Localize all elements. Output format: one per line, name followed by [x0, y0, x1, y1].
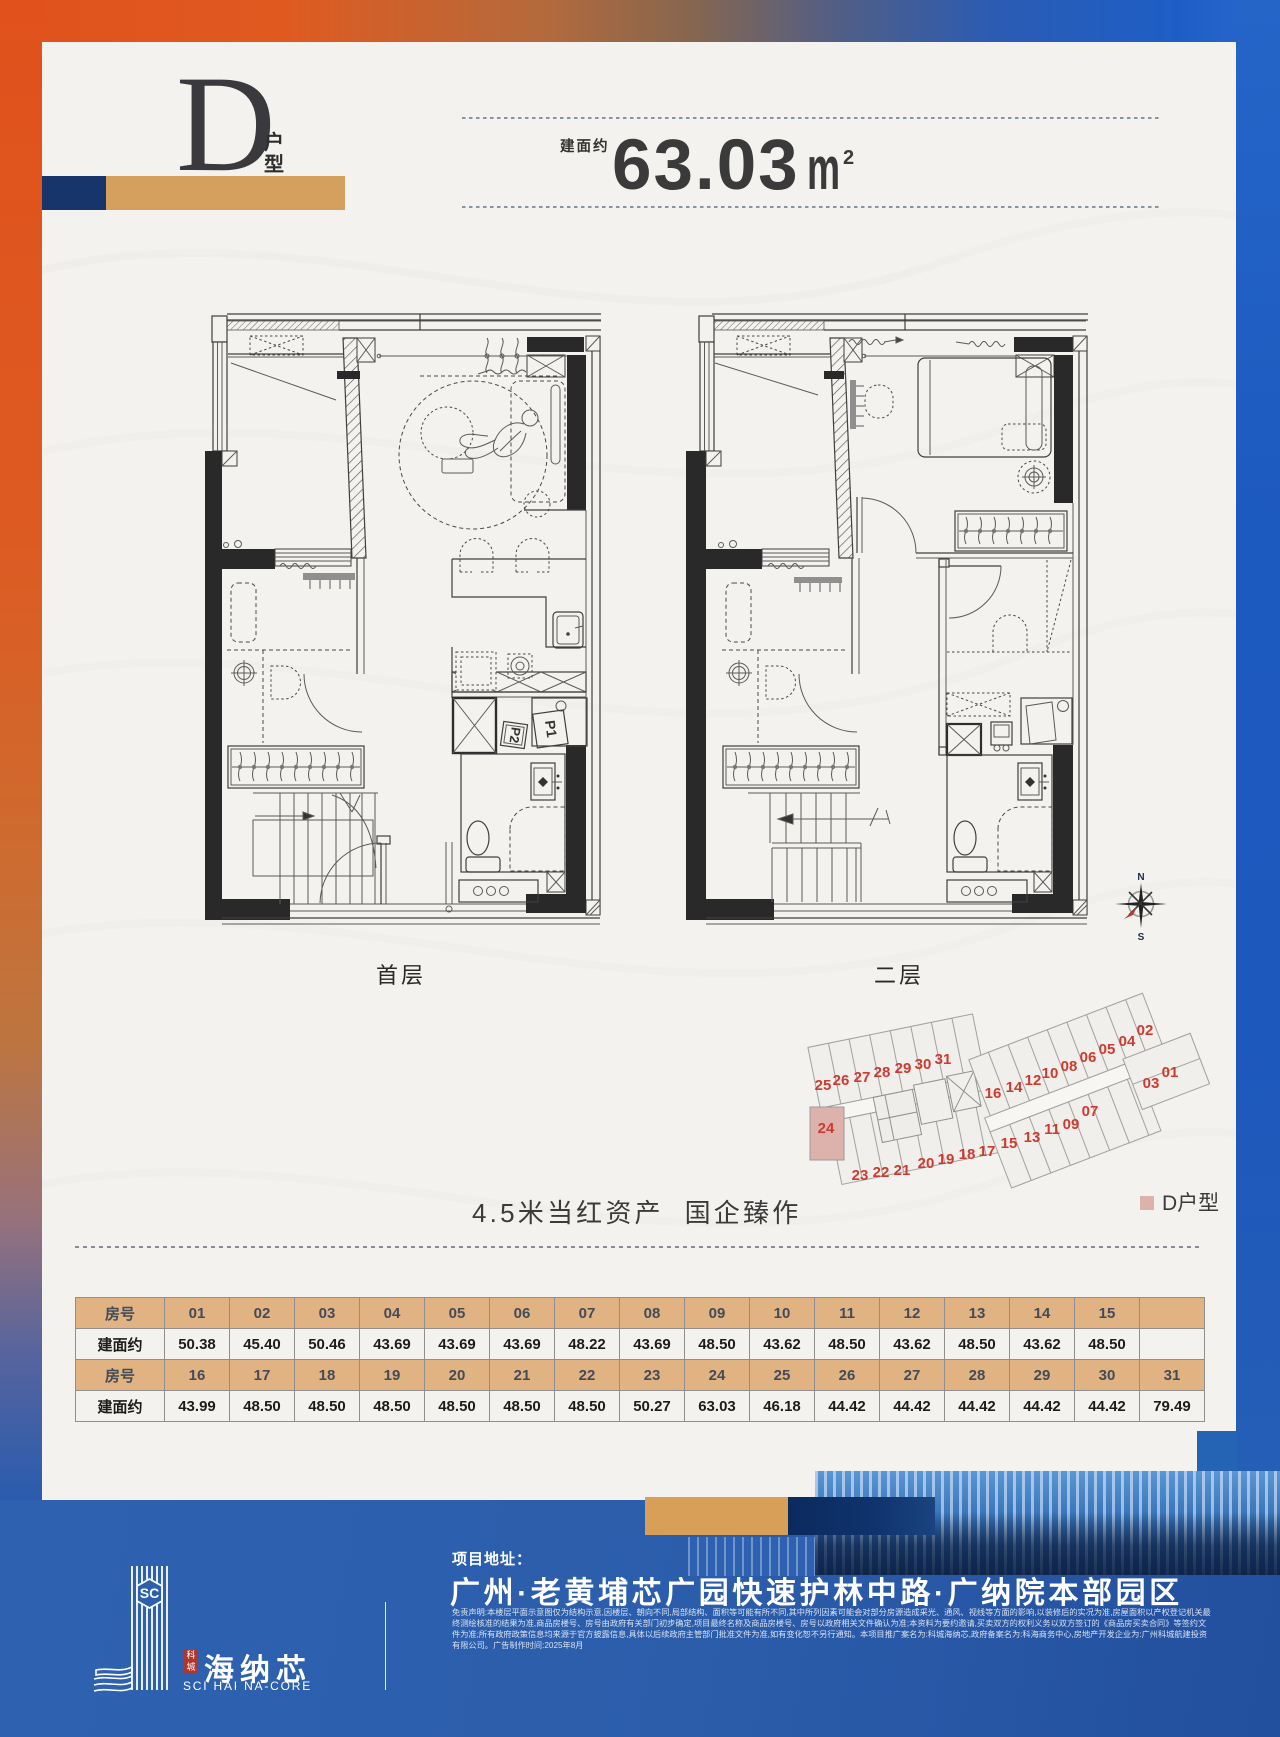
svg-text:D户型: D户型 — [1162, 1192, 1219, 1215]
svg-text:02: 02 — [1137, 1022, 1154, 1039]
svg-text:12: 12 — [1025, 1072, 1042, 1089]
svg-text:15: 15 — [1001, 1135, 1018, 1152]
svg-text:03: 03 — [1143, 1075, 1160, 1092]
svg-text:04: 04 — [1119, 1033, 1136, 1050]
svg-text:24: 24 — [818, 1120, 835, 1137]
svg-text:16: 16 — [985, 1085, 1002, 1102]
svg-text:20: 20 — [918, 1155, 935, 1172]
svg-text:06: 06 — [1080, 1049, 1097, 1066]
svg-text:18: 18 — [959, 1146, 976, 1163]
svg-text:13: 13 — [1024, 1129, 1041, 1146]
svg-text:S: S — [1138, 932, 1145, 943]
svg-text:14: 14 — [1006, 1079, 1023, 1096]
svg-text:P1: P1 — [542, 719, 560, 738]
svg-text:31: 31 — [935, 1051, 952, 1068]
svg-text:01: 01 — [1162, 1064, 1179, 1081]
svg-text:26: 26 — [833, 1072, 850, 1089]
svg-text:30: 30 — [915, 1056, 932, 1073]
svg-text:17: 17 — [979, 1143, 996, 1160]
svg-text:09: 09 — [1063, 1116, 1080, 1133]
svg-text:10: 10 — [1042, 1065, 1059, 1082]
svg-text:28: 28 — [874, 1064, 891, 1081]
svg-text:N: N — [1137, 872, 1144, 883]
svg-text:P2: P2 — [507, 726, 524, 744]
svg-text:25: 25 — [815, 1077, 832, 1094]
svg-text:07: 07 — [1082, 1103, 1099, 1120]
svg-text:23: 23 — [852, 1167, 869, 1184]
svg-text:08: 08 — [1061, 1058, 1078, 1075]
svg-text:21: 21 — [894, 1162, 911, 1179]
svg-text:11: 11 — [1044, 1121, 1060, 1138]
svg-text:05: 05 — [1099, 1041, 1116, 1058]
svg-text:27: 27 — [854, 1069, 871, 1086]
svg-text:19: 19 — [938, 1151, 955, 1168]
svg-text:29: 29 — [895, 1060, 912, 1077]
svg-text:22: 22 — [873, 1164, 890, 1181]
